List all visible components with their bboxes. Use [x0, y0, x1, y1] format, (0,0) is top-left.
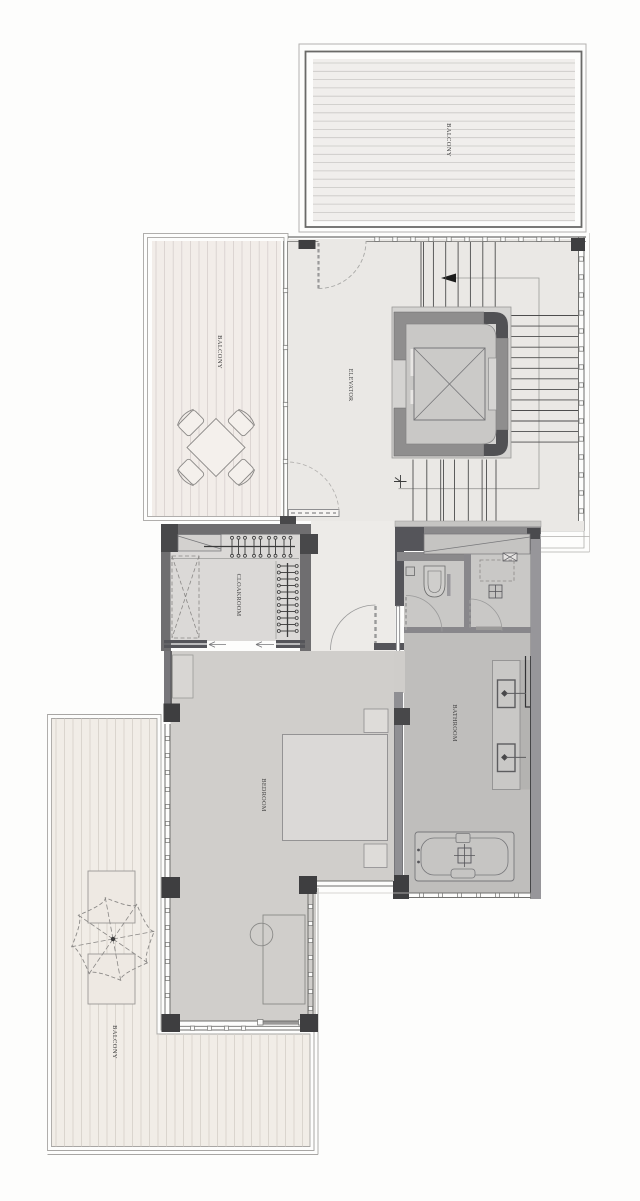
svg-text:BATHROOM: BATHROOM	[451, 704, 458, 741]
svg-text:ELEVATOR: ELEVATOR	[347, 369, 354, 402]
svg-text:BEDROOM: BEDROOM	[260, 778, 267, 811]
svg-text:BALCONY: BALCONY	[445, 123, 452, 157]
svg-text:CLOAKROOM: CLOAKROOM	[235, 574, 242, 617]
svg-text:BALCONY: BALCONY	[216, 335, 223, 369]
svg-text:BALCONY: BALCONY	[111, 1025, 118, 1059]
